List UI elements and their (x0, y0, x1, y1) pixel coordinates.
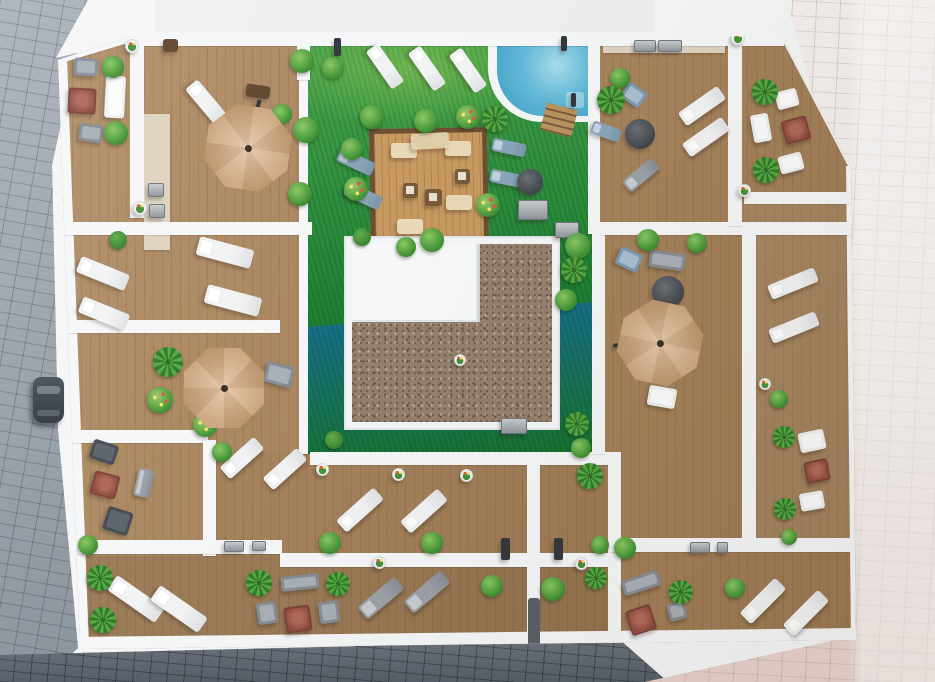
lounger-white (336, 487, 384, 532)
table-brown (245, 83, 271, 99)
bush (571, 438, 591, 458)
flower (147, 387, 173, 413)
palm (753, 157, 779, 183)
bush (610, 68, 630, 88)
bush (687, 233, 707, 253)
table-brown (163, 39, 178, 52)
divider-wall (744, 192, 850, 204)
bush (614, 537, 636, 559)
divider-wall (58, 320, 280, 333)
divider-wall (610, 538, 850, 552)
table-round (625, 119, 655, 149)
bush (725, 578, 745, 598)
equip (658, 40, 682, 52)
highlight-overlay (744, 204, 854, 538)
adjacent-roof (155, 0, 655, 32)
sofa-gray (620, 570, 661, 597)
palm (597, 86, 625, 114)
chair-gray (318, 600, 341, 625)
bush (781, 529, 797, 545)
bush (481, 575, 503, 597)
topiary (353, 228, 371, 246)
parapet-top (130, 36, 784, 46)
palm (246, 570, 272, 596)
palm (90, 607, 116, 633)
lounger-gray (403, 570, 450, 613)
cushion (397, 219, 423, 234)
table-red (780, 115, 811, 145)
palm (565, 412, 589, 436)
bush (541, 577, 565, 601)
palm (752, 79, 778, 105)
lounger-gray (622, 157, 660, 192)
lounger-gray (357, 576, 404, 619)
palm (577, 463, 603, 489)
bush (555, 289, 577, 311)
lounger-white (195, 236, 254, 269)
ptable (455, 169, 470, 184)
palm (669, 580, 693, 604)
umbrella (184, 348, 264, 428)
door-dark (528, 598, 540, 646)
parked-car (33, 377, 64, 423)
bush (565, 233, 591, 259)
bush (341, 138, 363, 160)
palm (585, 567, 607, 589)
equip (717, 542, 728, 553)
palm (153, 347, 183, 377)
equip (149, 204, 165, 218)
post (571, 93, 576, 107)
bush (322, 57, 344, 79)
bush (212, 442, 232, 462)
table-red (89, 470, 120, 500)
equip (224, 541, 244, 552)
pot (373, 556, 386, 569)
lounger-white (400, 488, 448, 533)
ptable (425, 189, 442, 206)
divider-wall (58, 222, 312, 235)
post (334, 38, 341, 56)
equip (252, 541, 266, 551)
pot (454, 354, 466, 366)
bush (104, 121, 128, 145)
pot (460, 469, 473, 482)
chair-blue (614, 245, 644, 272)
bush (414, 109, 438, 133)
rooftop-render (0, 0, 935, 682)
seat-white (646, 385, 677, 410)
bush (770, 390, 788, 408)
rooftop-building (0, 0, 935, 682)
divider-wall (592, 232, 605, 454)
divider-wall (728, 36, 742, 226)
divider-wall (310, 452, 608, 465)
palm (482, 106, 508, 132)
equip (690, 542, 710, 553)
pot (392, 468, 405, 481)
lounger-white (767, 267, 819, 300)
divider-wall (600, 222, 850, 235)
bush (78, 535, 98, 555)
divider-wall (130, 38, 144, 218)
pot (759, 378, 771, 390)
seat-white (797, 429, 827, 454)
flower (476, 193, 500, 217)
chair-gray (74, 57, 99, 76)
ptable (403, 183, 418, 198)
divider-wall (58, 430, 208, 443)
bush (421, 532, 443, 554)
table-round (517, 169, 543, 195)
palm (87, 565, 113, 591)
sofa-dark (102, 506, 134, 537)
table-red (67, 87, 96, 114)
pot (575, 557, 588, 570)
flower (344, 177, 368, 201)
divider-wall (742, 224, 756, 540)
pot (125, 39, 139, 53)
flower (456, 105, 480, 129)
cushion (446, 195, 472, 210)
lounger-white (203, 284, 262, 317)
bush (290, 49, 314, 73)
bush (637, 229, 659, 251)
lounger-white (768, 311, 820, 344)
equip (148, 183, 164, 197)
bush (591, 536, 609, 554)
equip (518, 200, 548, 220)
bush (293, 117, 319, 143)
bush (396, 237, 416, 257)
pot (133, 201, 147, 215)
topiary (109, 231, 127, 249)
seat-white (799, 490, 826, 512)
divider-wall (299, 44, 308, 454)
chair-gray (78, 122, 104, 143)
lounger-white (740, 578, 787, 625)
bush (360, 105, 384, 129)
seat-white (750, 113, 773, 144)
pot (738, 184, 751, 197)
topiary (325, 431, 343, 449)
table-red (803, 458, 831, 485)
sofa-gray (648, 249, 686, 271)
post (561, 36, 567, 51)
post (501, 538, 510, 560)
bush (420, 228, 444, 252)
lounger-gray (133, 468, 154, 499)
equip (634, 40, 656, 52)
palm (326, 572, 350, 596)
equip (501, 418, 527, 434)
palm (773, 426, 795, 448)
sofa-gray (280, 573, 319, 592)
bush (102, 56, 124, 78)
table-red (283, 604, 312, 633)
palm (561, 257, 587, 283)
seat-white (777, 151, 805, 175)
stairwell-roof (352, 244, 480, 322)
lounger-white (76, 255, 131, 290)
pot (316, 463, 329, 476)
seat-white (104, 76, 126, 119)
rug (411, 132, 450, 150)
chair-gray (256, 601, 279, 626)
lounger-white (263, 448, 308, 491)
palm (774, 498, 796, 520)
chair-gray (263, 360, 295, 388)
post (554, 538, 563, 560)
bush (288, 182, 312, 206)
bush (319, 532, 341, 554)
umbrella (611, 294, 708, 391)
